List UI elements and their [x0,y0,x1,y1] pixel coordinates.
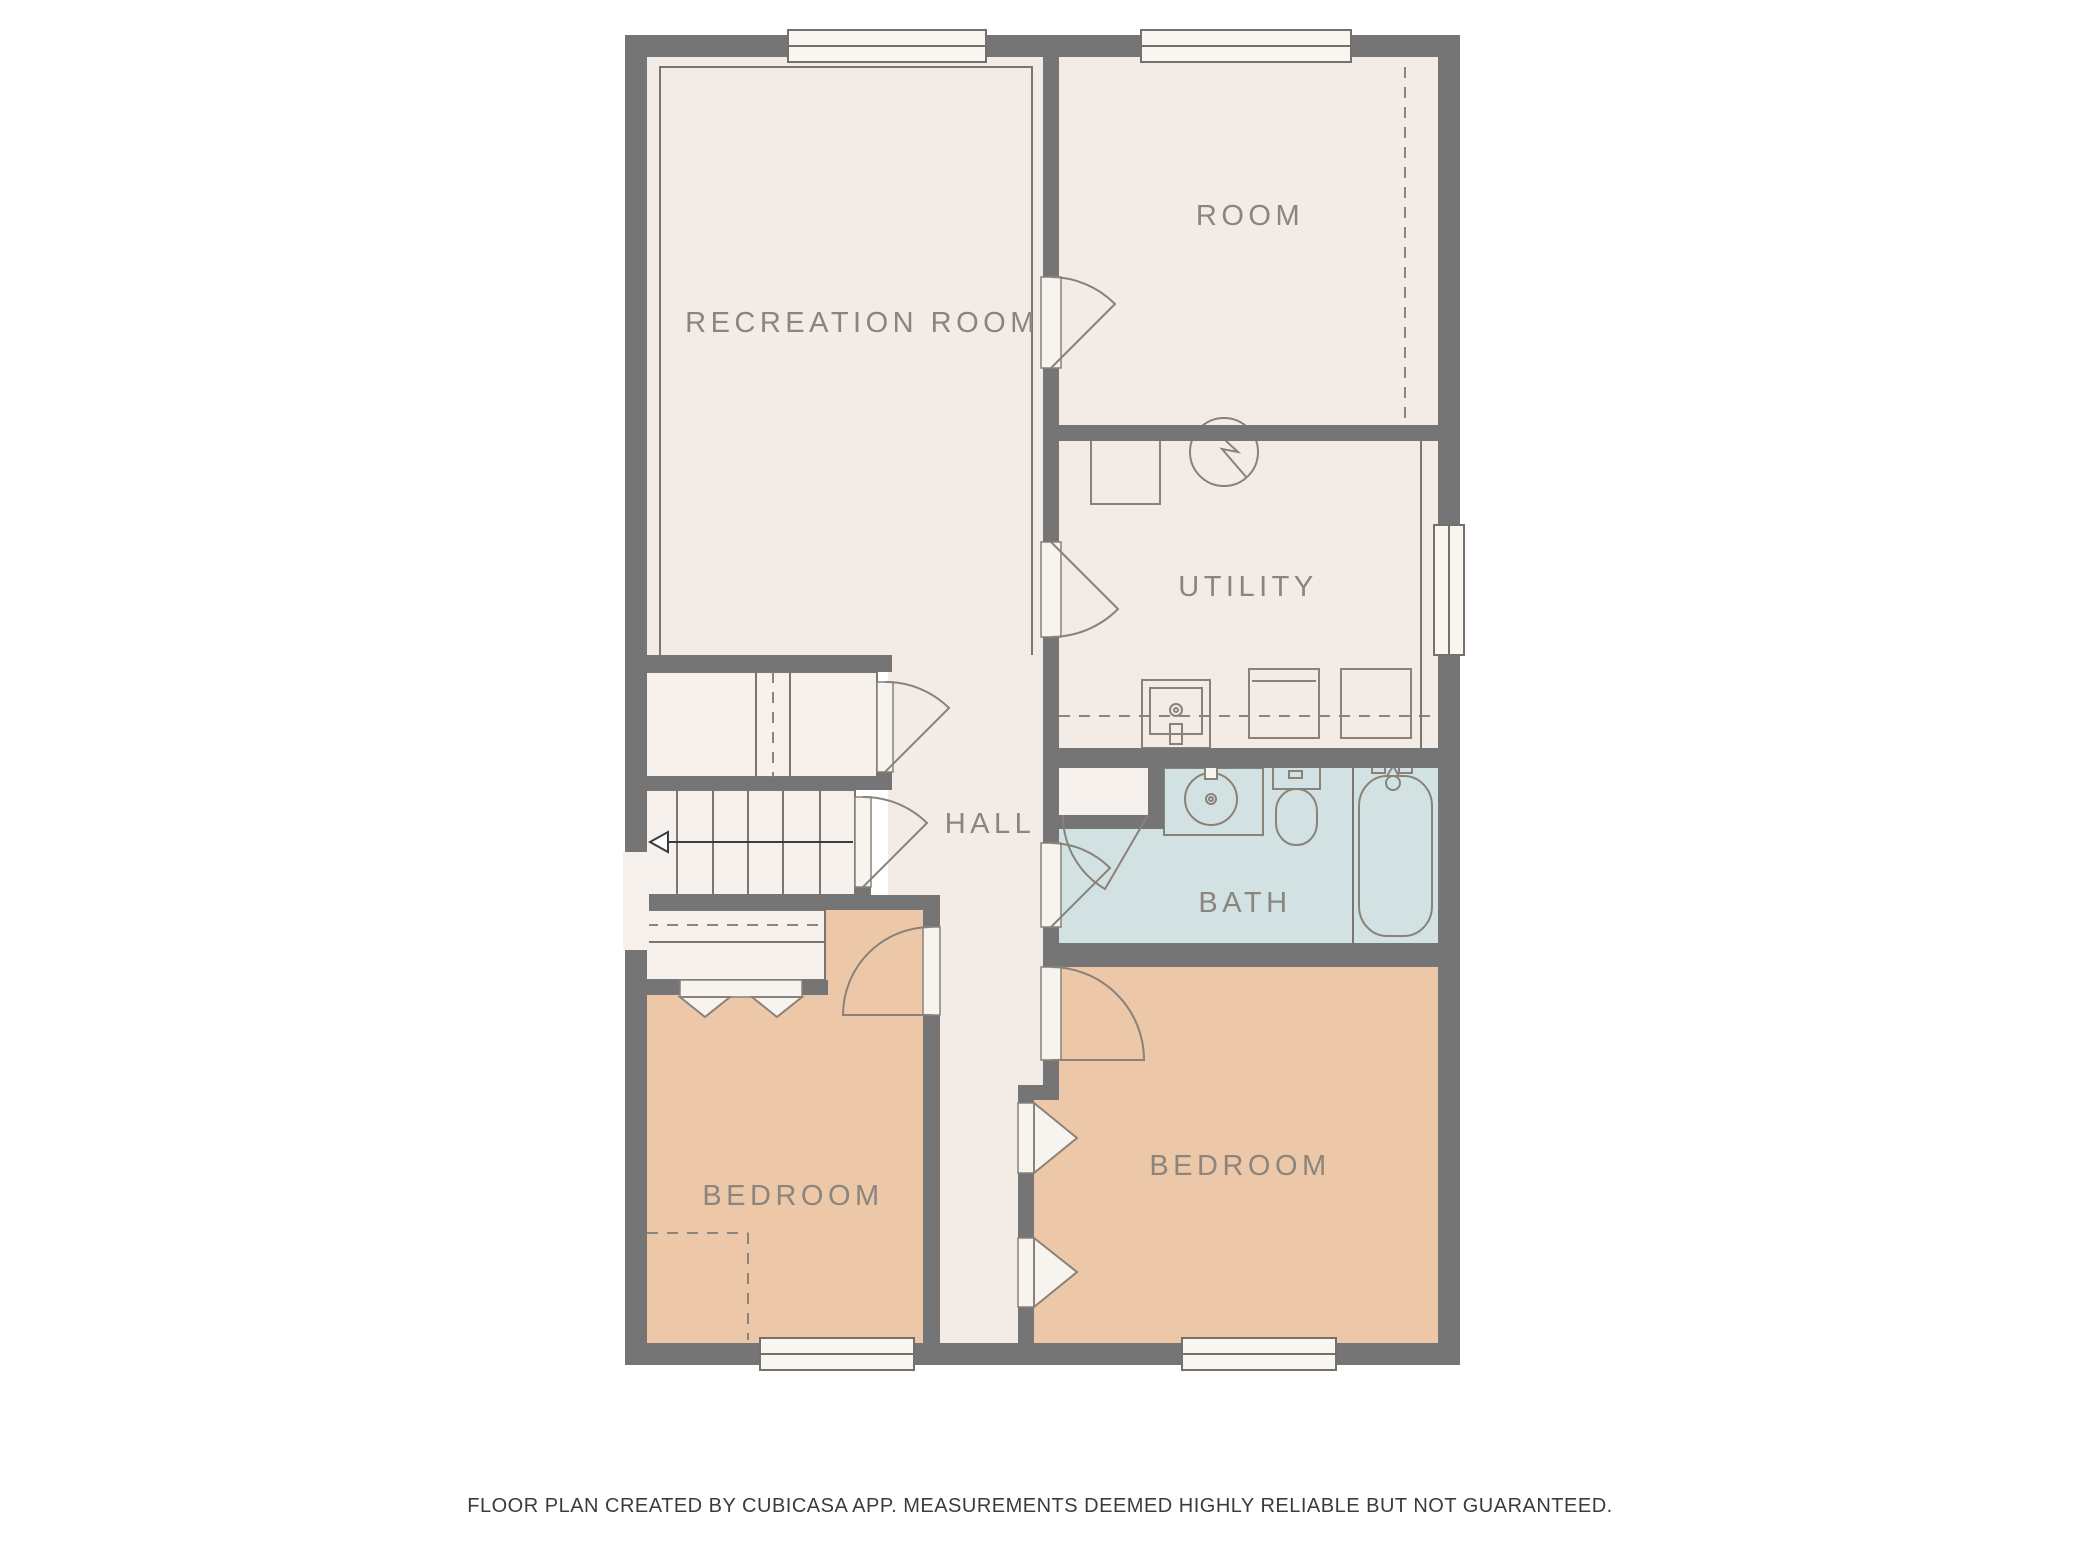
below-stairs-wall [625,895,940,910]
window-top-right [1141,30,1351,62]
label-hall: HALL [945,808,1036,840]
bedroom-left-wall-upper [923,910,940,927]
hall-closet-strip-floor [940,1085,1018,1343]
bedroom-left-wall-lower [923,1015,940,1343]
central-wall [1043,57,1059,968]
bifold-stub-left [625,980,680,995]
room-utility-wall [1043,425,1460,441]
bath-bedroom-wall [1043,943,1460,967]
bath-closet-floor [1059,768,1148,815]
strip-wall-2 [1018,1173,1034,1238]
stair-wall-opening [623,852,649,950]
window-top-left [788,30,986,62]
label-bedroom-right: BEDROOM [1149,1150,1330,1182]
window-utility-right [1434,525,1464,655]
bifold-stub-right [802,980,828,995]
hall-closet-floor [642,672,877,777]
outer-wall-left [625,35,647,1365]
label-recreation-room: RECREATION ROOM [685,307,1039,339]
recreation-room-bottom-wall [625,655,892,672]
window-bottom-right [1182,1338,1336,1370]
room-floor [1059,57,1438,425]
recreation-room-floor [647,57,1043,655]
closet-stairs-wall [625,777,892,790]
utility-bath-wall [1043,748,1460,768]
footer-disclaimer: FLOOR PLAN CREATED BY CUBICASA APP. MEAS… [467,1495,1612,1517]
strip-wall-3 [1018,1307,1034,1343]
strip-wall-1 [1018,1085,1034,1103]
label-room: ROOM [1196,200,1304,232]
label-bath: BATH [1198,887,1291,919]
label-bedroom-left: BEDROOM [702,1180,883,1212]
under-stair-closet [642,910,825,980]
window-bottom-left [760,1338,914,1370]
label-utility: UTILITY [1178,571,1317,603]
outer-wall-right [1438,35,1460,1365]
floor-plan: RECREATION ROOM ROOM UTILITY HALL BATH B… [0,0,2080,1560]
bath-closet-wall-right [1148,768,1164,829]
